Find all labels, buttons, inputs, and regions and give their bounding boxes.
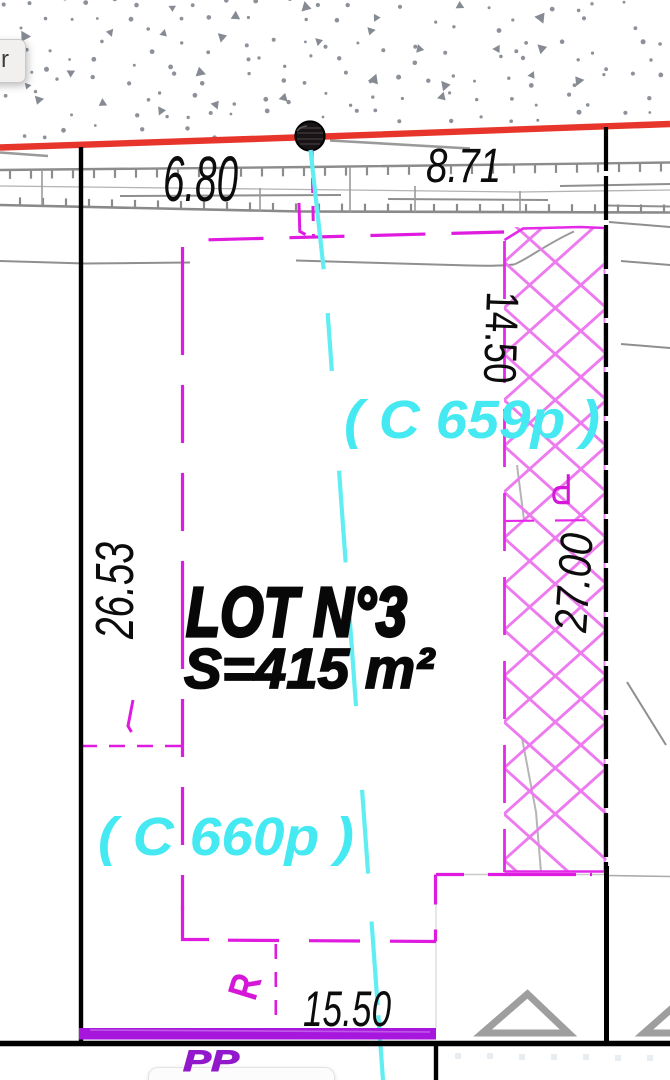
svg-text:14.50: 14.50 — [474, 291, 529, 385]
svg-text:( C 660p ): ( C 660p ) — [98, 807, 354, 867]
svg-text:( C 659p ): ( C 659p ) — [344, 390, 600, 450]
svg-text:P: P — [551, 465, 573, 514]
svg-text:S=415 m²: S=415 m² — [184, 637, 436, 701]
svg-text:R: R — [219, 968, 271, 1005]
svg-text:15.50: 15.50 — [303, 981, 391, 1037]
svg-text:8.71: 8.71 — [426, 140, 501, 193]
svg-text:27.00: 27.00 — [544, 531, 603, 635]
svg-text:6.80: 6.80 — [163, 143, 238, 215]
svg-text:26.53: 26.53 — [85, 542, 145, 640]
svg-text:PP: PP — [183, 1045, 240, 1078]
